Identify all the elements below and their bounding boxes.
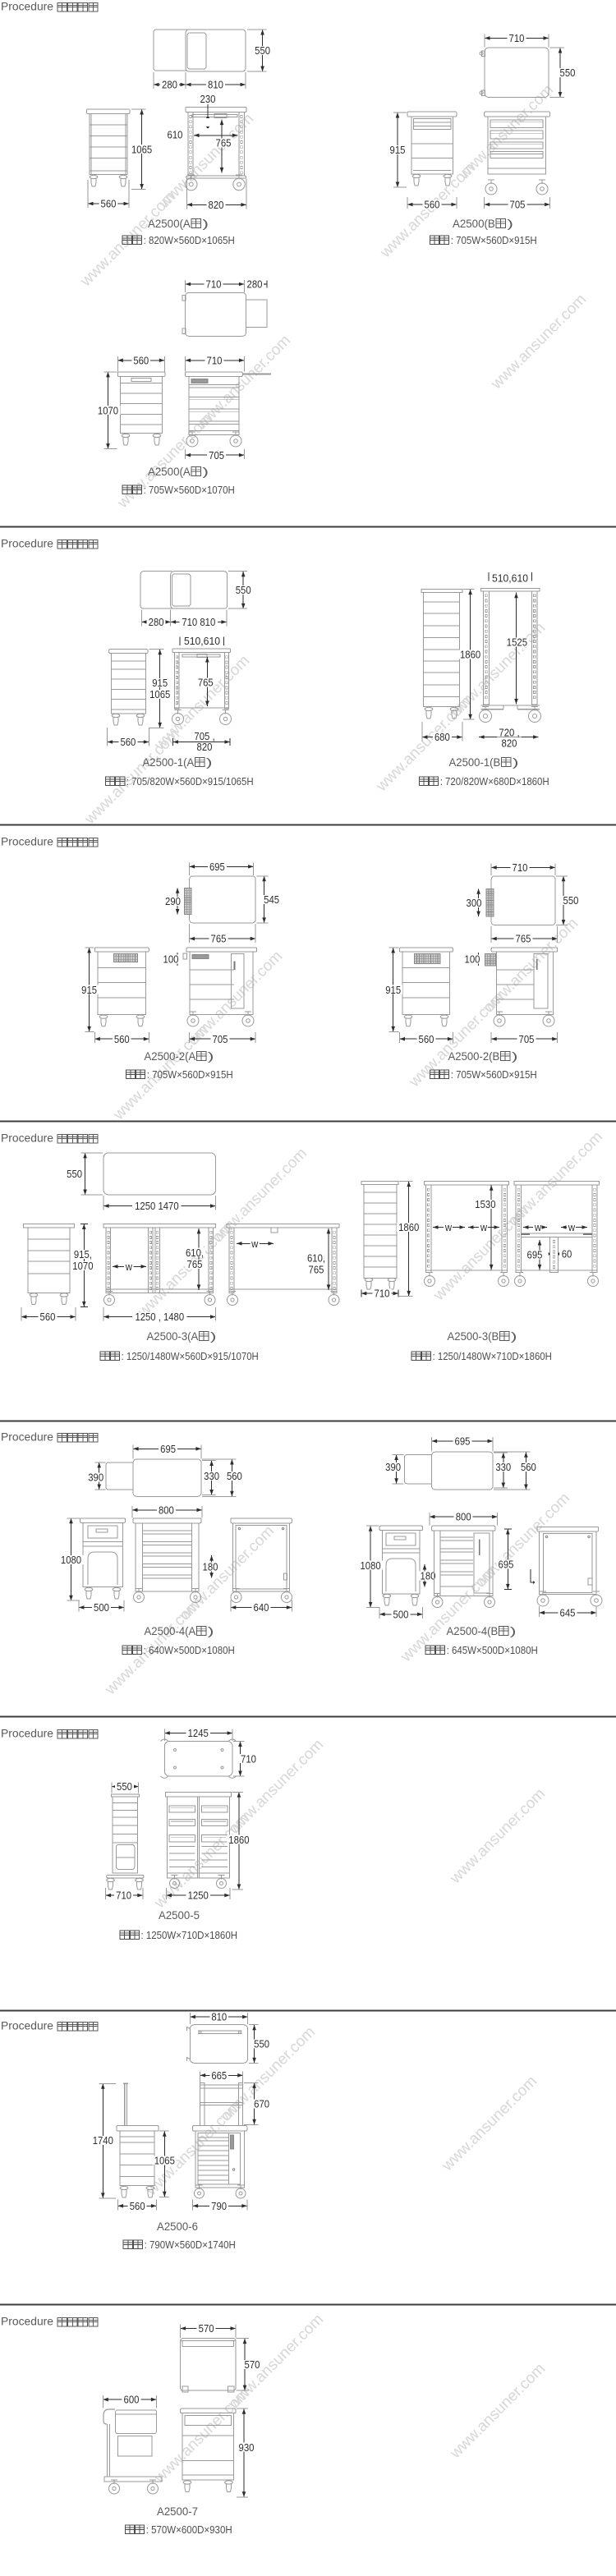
svg-text:280: 280 xyxy=(149,616,164,628)
svg-text:Procedure: Procedure xyxy=(1,1,53,13)
svg-text:: 790W×560D×1740H: : 790W×560D×1740H xyxy=(145,2239,236,2251)
svg-text:1065: 1065 xyxy=(149,688,170,700)
svg-text:810: 810 xyxy=(208,79,223,91)
svg-text:w: w xyxy=(251,1237,259,1250)
svg-text:695: 695 xyxy=(499,1559,514,1571)
svg-text:610: 610 xyxy=(168,128,183,140)
svg-text:1245: 1245 xyxy=(188,1727,209,1739)
svg-text:330: 330 xyxy=(204,1470,219,1482)
svg-text:A2500(A: A2500(A xyxy=(148,466,191,478)
svg-text:710: 710 xyxy=(116,1890,131,1902)
svg-text:Procedure: Procedure xyxy=(1,1728,53,1740)
svg-text:: 705W×560D×915H: : 705W×560D×915H xyxy=(147,1068,233,1081)
svg-text:570: 570 xyxy=(199,2322,214,2335)
svg-text:1740: 1740 xyxy=(93,2134,113,2147)
svg-text:1065: 1065 xyxy=(154,2155,175,2167)
svg-text:w: w xyxy=(125,1260,133,1273)
svg-text:710: 710 xyxy=(513,861,528,874)
svg-text:Procedure: Procedure xyxy=(1,2316,53,2328)
svg-text:: 720/820W×680D×1860H: : 720/820W×680D×1860H xyxy=(440,775,549,787)
svg-text:765: 765 xyxy=(516,933,531,945)
svg-text:): ) xyxy=(206,756,213,769)
svg-text:670: 670 xyxy=(254,2098,269,2110)
svg-text:1250: 1250 xyxy=(188,1890,209,1902)
svg-text:A2500-7: A2500-7 xyxy=(157,2505,198,2518)
svg-text:915: 915 xyxy=(81,984,97,996)
svg-text:1080: 1080 xyxy=(61,1554,81,1566)
svg-text:705: 705 xyxy=(213,1033,228,1045)
svg-text:1860: 1860 xyxy=(398,1221,419,1233)
svg-text:915: 915 xyxy=(152,677,168,689)
svg-text:790: 790 xyxy=(211,2200,227,2212)
svg-text:1070: 1070 xyxy=(98,404,118,416)
svg-text:A2500(B: A2500(B xyxy=(453,218,495,230)
svg-text:1070: 1070 xyxy=(72,1260,93,1272)
svg-text:550: 550 xyxy=(255,44,270,57)
svg-text:: 1250/1480W×710D×1860H: : 1250/1480W×710D×1860H xyxy=(433,1350,552,1362)
svg-text:500: 500 xyxy=(94,1601,109,1614)
svg-text:680: 680 xyxy=(434,731,450,743)
svg-text:A2500-1(B: A2500-1(B xyxy=(449,756,501,769)
svg-text:A2500-3(B: A2500-3(B xyxy=(448,1330,499,1343)
svg-text:560: 560 xyxy=(120,736,136,748)
svg-text:w: w xyxy=(568,1221,576,1233)
svg-text:w: w xyxy=(444,1221,453,1233)
svg-text:915,: 915, xyxy=(74,1248,92,1260)
svg-text:): ) xyxy=(202,466,209,478)
svg-text:Procedure: Procedure xyxy=(1,2020,53,2032)
svg-text:: 570W×600D×930H: : 570W×600D×930H xyxy=(146,2523,232,2536)
svg-text:570: 570 xyxy=(245,2358,260,2371)
svg-text:: 640W×500D×1080H: : 640W×500D×1080H xyxy=(144,1644,235,1656)
svg-text:180: 180 xyxy=(203,1561,218,1573)
svg-text:560: 560 xyxy=(130,2200,145,2212)
svg-text:: 645W×500D×1080H: : 645W×500D×1080H xyxy=(447,1644,538,1656)
svg-text:1065: 1065 xyxy=(131,143,152,155)
svg-text:550: 550 xyxy=(117,1780,132,1793)
svg-text:915: 915 xyxy=(385,984,401,996)
svg-text:390: 390 xyxy=(88,1472,103,1484)
svg-text:230: 230 xyxy=(200,93,216,105)
svg-text:A2500-6: A2500-6 xyxy=(157,2220,198,2233)
svg-text:100: 100 xyxy=(163,953,179,966)
svg-text:705: 705 xyxy=(510,199,526,211)
svg-text:550: 550 xyxy=(254,2038,269,2050)
svg-text:560: 560 xyxy=(114,1033,130,1045)
svg-text:Procedure: Procedure xyxy=(1,836,53,848)
svg-text:A2500-4(B: A2500-4(B xyxy=(447,1625,499,1637)
svg-text:550: 550 xyxy=(236,584,251,596)
svg-text:w: w xyxy=(480,1221,488,1233)
svg-text:765: 765 xyxy=(216,137,232,149)
svg-text:: 1250/1480W×560D×915/1070H: : 1250/1480W×560D×915/1070H xyxy=(122,1350,259,1362)
svg-text:280: 280 xyxy=(247,278,263,291)
svg-text:800: 800 xyxy=(159,1504,174,1516)
svg-text:A2500-2(B: A2500-2(B xyxy=(448,1050,500,1063)
svg-text:610,: 610, xyxy=(186,1247,204,1259)
svg-text:60: 60 xyxy=(562,1248,572,1260)
svg-text:): ) xyxy=(202,218,209,230)
svg-text:: 705/820W×560D×915/1065H: : 705/820W×560D×915/1065H xyxy=(126,775,254,787)
svg-text:915: 915 xyxy=(390,144,406,156)
svg-text:820: 820 xyxy=(197,741,213,753)
svg-text:): ) xyxy=(208,1050,214,1063)
svg-text:560: 560 xyxy=(419,1033,434,1045)
svg-text:600: 600 xyxy=(124,2394,140,2406)
svg-text:A2500-2(A: A2500-2(A xyxy=(145,1050,196,1063)
svg-text:705: 705 xyxy=(209,449,224,461)
svg-text:: 705W×560D×915H: : 705W×560D×915H xyxy=(451,234,537,246)
svg-text:560: 560 xyxy=(227,1470,242,1482)
svg-text:: 1250W×710D×1860H: : 1250W×710D×1860H xyxy=(141,1929,238,1941)
svg-text:710: 710 xyxy=(509,32,525,44)
svg-text:1860: 1860 xyxy=(460,649,480,661)
svg-text:: 705W×560D×1070H: : 705W×560D×1070H xyxy=(144,484,235,496)
svg-text:1080: 1080 xyxy=(361,1559,381,1572)
svg-text:550: 550 xyxy=(563,894,579,907)
svg-text:510,610: 510,610 xyxy=(492,572,528,585)
svg-text:710: 710 xyxy=(206,278,222,291)
svg-text:1530: 1530 xyxy=(475,1198,495,1210)
svg-text:800: 800 xyxy=(456,1511,471,1523)
svg-text:820: 820 xyxy=(502,737,517,749)
svg-text:550: 550 xyxy=(560,67,576,79)
svg-text:560: 560 xyxy=(425,199,440,211)
svg-text:300: 300 xyxy=(467,897,482,909)
svg-text:810: 810 xyxy=(211,2011,227,2023)
svg-text:): ) xyxy=(512,1050,518,1063)
svg-text:710: 710 xyxy=(375,1288,390,1300)
svg-text:560: 560 xyxy=(40,1311,56,1323)
svg-text:): ) xyxy=(510,1625,517,1637)
svg-text:A2500-3(A: A2500-3(A xyxy=(147,1330,199,1343)
svg-text:1525: 1525 xyxy=(507,636,527,648)
svg-text:710: 710 xyxy=(207,354,223,366)
svg-text:A2500(A: A2500(A xyxy=(148,218,191,230)
svg-text:765: 765 xyxy=(187,1258,203,1270)
svg-text:330: 330 xyxy=(495,1461,511,1473)
svg-text:560: 560 xyxy=(133,354,149,366)
svg-text:: 820W×560D×1065H: : 820W×560D×1065H xyxy=(144,234,235,246)
svg-text:Procedure: Procedure xyxy=(1,1132,53,1145)
svg-text:1250 , 1480: 1250 , 1480 xyxy=(135,1311,184,1323)
svg-text:695: 695 xyxy=(455,1435,471,1448)
svg-text:930: 930 xyxy=(239,2441,255,2454)
svg-text:665: 665 xyxy=(211,2069,227,2082)
svg-text:550: 550 xyxy=(67,1168,82,1180)
svg-text:820: 820 xyxy=(209,199,224,211)
svg-text:500: 500 xyxy=(393,1608,409,1620)
svg-text:765: 765 xyxy=(309,1264,324,1276)
svg-text:765: 765 xyxy=(198,677,214,689)
svg-text:100: 100 xyxy=(465,953,480,966)
svg-text:w: w xyxy=(534,1221,542,1233)
svg-text:): ) xyxy=(210,1330,217,1343)
svg-text:710 810: 710 810 xyxy=(182,616,215,628)
svg-text:610,: 610, xyxy=(307,1251,325,1264)
svg-text:645: 645 xyxy=(560,1607,576,1619)
svg-text:695: 695 xyxy=(209,861,225,873)
svg-text:695: 695 xyxy=(160,1443,176,1455)
svg-text:705: 705 xyxy=(519,1033,535,1045)
svg-text:): ) xyxy=(513,756,519,769)
svg-text:560: 560 xyxy=(101,198,117,210)
svg-text:1250 1470: 1250 1470 xyxy=(135,1200,179,1212)
svg-text:Procedure: Procedure xyxy=(1,538,53,550)
svg-text:290: 290 xyxy=(165,895,181,907)
svg-text:A2500-1(A: A2500-1(A xyxy=(143,756,195,769)
svg-text:): ) xyxy=(511,1330,517,1343)
svg-text:1860: 1860 xyxy=(228,1834,249,1846)
svg-text:): ) xyxy=(507,218,513,230)
svg-text:: 705W×560D×915H: : 705W×560D×915H xyxy=(451,1068,537,1081)
svg-text:510,610: 510,610 xyxy=(184,635,220,647)
svg-text:A2500-4(A: A2500-4(A xyxy=(145,1625,196,1637)
svg-text:560: 560 xyxy=(521,1461,536,1473)
svg-text:390: 390 xyxy=(385,1461,401,1473)
svg-text:): ) xyxy=(208,1625,214,1637)
svg-text:A2500-5: A2500-5 xyxy=(159,1909,200,1922)
svg-text:640: 640 xyxy=(254,1601,269,1614)
svg-text:710: 710 xyxy=(241,1752,256,1765)
svg-text:Procedure: Procedure xyxy=(1,1431,53,1444)
svg-text:695: 695 xyxy=(527,1248,543,1260)
svg-text:280: 280 xyxy=(162,79,177,91)
svg-text:545: 545 xyxy=(264,893,279,906)
svg-text:180: 180 xyxy=(421,1570,436,1582)
svg-text:765: 765 xyxy=(211,933,227,945)
